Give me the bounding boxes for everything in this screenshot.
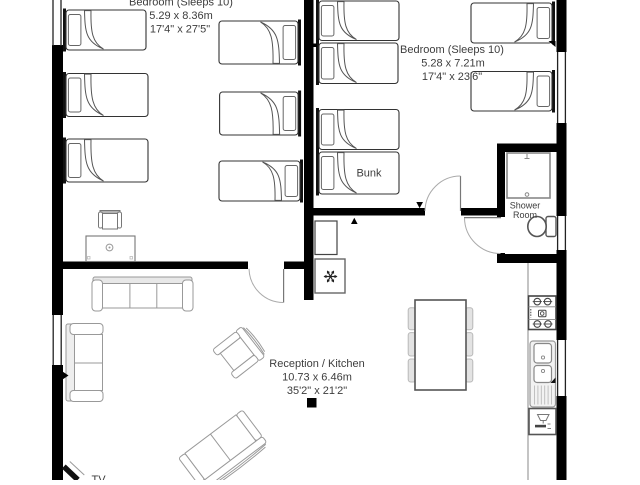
svg-text:35'2" x 21'2": 35'2" x 21'2" — [287, 385, 347, 397]
svg-text:10.73 x 6.46m: 10.73 x 6.46m — [282, 372, 352, 384]
svg-text:17'4" x 27'5": 17'4" x 27'5" — [150, 24, 210, 36]
svg-text:TV: TV — [91, 474, 106, 480]
svg-text:17'4" x 23'6": 17'4" x 23'6" — [422, 71, 482, 83]
svg-text:Shower: Shower — [510, 201, 541, 211]
svg-text:5.28 x 7.21m: 5.28 x 7.21m — [421, 58, 485, 70]
svg-text:5.29 x 8.36m: 5.29 x 8.36m — [149, 10, 213, 22]
svg-text:Bedroom (Sleeps 10): Bedroom (Sleeps 10) — [400, 44, 504, 56]
svg-text:Reception / Kitchen: Reception / Kitchen — [269, 358, 364, 370]
svg-text:Bedroom (Sleeps 10): Bedroom (Sleeps 10) — [129, 0, 233, 9]
svg-text:Room: Room — [513, 210, 537, 220]
svg-text:Bunk: Bunk — [356, 168, 382, 180]
